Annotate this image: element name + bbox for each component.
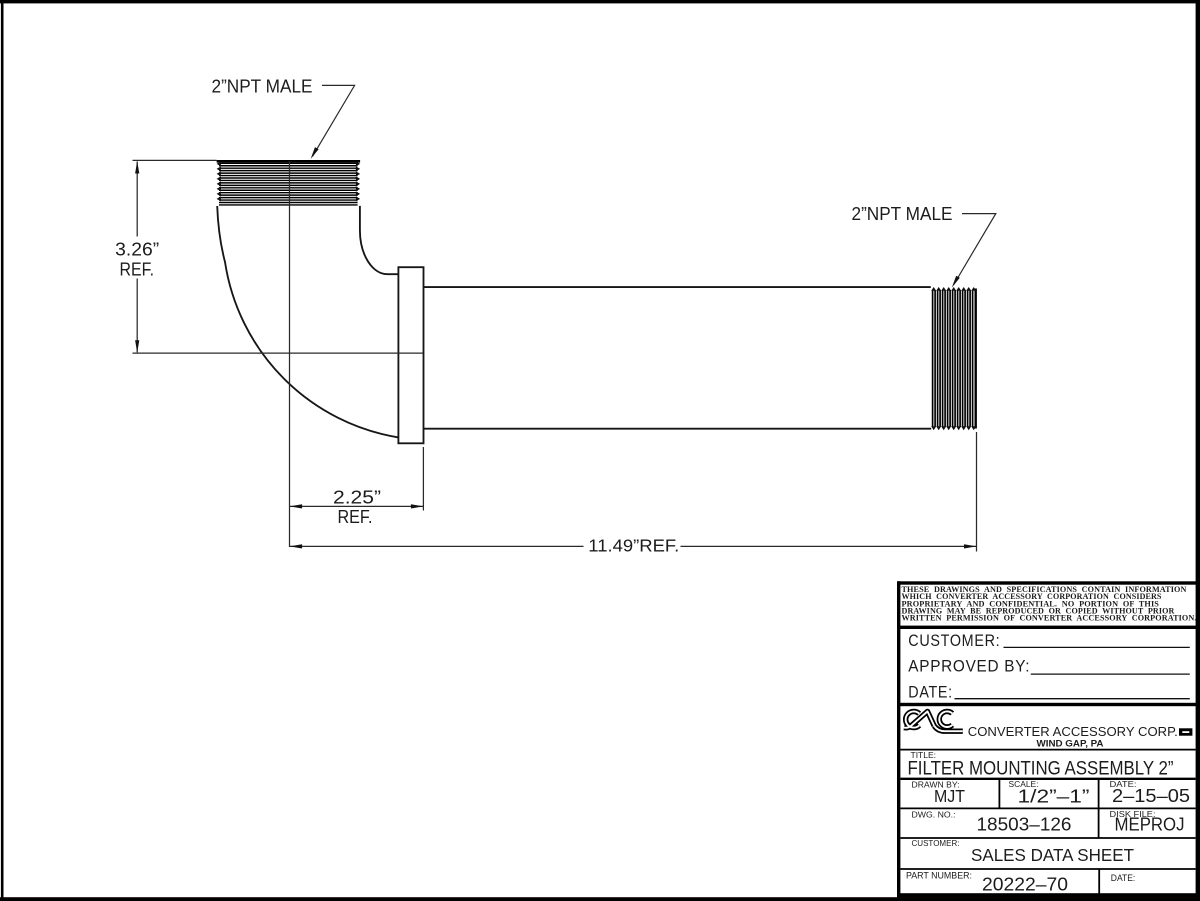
svg-text:2.25”: 2.25” [333, 487, 381, 507]
svg-text:DATE:: DATE: [908, 682, 953, 701]
svg-text:1/2”–1”: 1/2”–1” [1018, 787, 1090, 807]
svg-text:APPROVED BY:: APPROVED BY: [908, 657, 1030, 676]
svg-text:18503–126: 18503–126 [977, 813, 1072, 834]
svg-text:SALES DATA SHEET: SALES DATA SHEET [971, 845, 1134, 865]
svg-text:DATE:: DATE: [1111, 873, 1136, 883]
svg-text:PART NUMBER:: PART NUMBER: [906, 871, 972, 881]
svg-text:FILTER MOUNTING ASSEMBLY 2”: FILTER MOUNTING ASSEMBLY 2” [908, 759, 1174, 780]
svg-text:2–15–05: 2–15–05 [1112, 786, 1190, 806]
svg-text:MJT: MJT [934, 786, 965, 806]
svg-text:CUSTOMER:: CUSTOMER: [912, 838, 960, 848]
svg-text:REF.: REF. [120, 259, 155, 279]
svg-text:3.26”: 3.26” [115, 239, 159, 259]
svg-text:REF.: REF. [338, 507, 373, 527]
svg-text:WRITTEN PERMISSION OF CONVERTE: WRITTEN PERMISSION OF CONVERTER ACCESSOR… [902, 614, 1197, 623]
svg-text:11.49”REF.: 11.49”REF. [588, 536, 679, 556]
svg-text:2”NPT MALE: 2”NPT MALE [852, 204, 953, 224]
svg-text:20222–70: 20222–70 [982, 873, 1068, 894]
svg-text:2”NPT MALE: 2”NPT MALE [212, 77, 313, 97]
svg-text:MEPROJ: MEPROJ [1115, 814, 1185, 834]
svg-text:DWG. NO.:: DWG. NO.: [912, 809, 956, 819]
svg-text:WIND GAP, PA: WIND GAP, PA [1037, 737, 1104, 748]
svg-text:CUSTOMER:: CUSTOMER: [908, 631, 1000, 650]
